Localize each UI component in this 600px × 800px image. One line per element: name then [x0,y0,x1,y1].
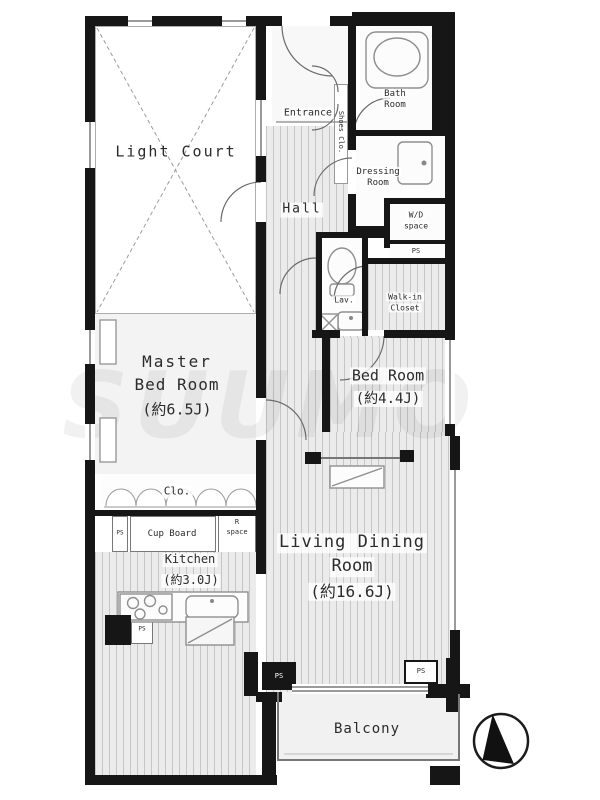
watermark: SUUMO [62,352,542,462]
label-master-1: Master [140,353,214,371]
label-bath-2: Room [382,100,408,110]
label-living-1: Living Dining [277,533,427,553]
label-lavatory: Lav. [332,295,355,304]
label-living-2: Room [330,557,375,577]
north-arrow-icon [474,714,528,768]
room-dressing-ext [356,198,384,232]
room-living-extension [95,622,256,775]
label-kitchen: Kitchen [163,553,218,567]
label-balcony: Balcony [332,721,402,737]
label-wd-2: space [402,221,430,230]
label-master-size: (約6.5J) [140,401,213,418]
label-ps-wd: PS [410,247,422,255]
label-dressing-2: Room [365,178,391,188]
label-r-space-1: R [233,518,241,526]
label-closet: Clo. [162,486,193,499]
label-shoes-closet: Shoes Clo. [335,111,347,153]
label-wic-2: Closet [389,303,422,312]
label-dressing-1: Dressing [354,167,401,177]
label-light-court: Light Court [113,143,238,160]
label-bedroom-1: Bed Room [350,367,426,384]
label-living-size: (約16.6J) [308,583,395,601]
label-wd-1: W/D [407,210,425,219]
room-light-court [95,26,256,314]
label-r-space-2: space [224,528,249,536]
label-master-2: Bed Room [132,376,221,394]
floor-plan: SUUMO [0,0,600,800]
label-bedroom-size: (約4.4J) [354,391,423,407]
label-ps-balcony-left: PS [273,672,285,680]
room-bath [360,26,432,130]
label-kitchen-size: (約3.0J) [161,574,220,588]
room-hall-lower [266,238,316,336]
label-cup-board: Cup Board [146,529,199,539]
label-hall: Hall [280,203,323,218]
label-bath-1: Bath [382,89,408,99]
label-entrance: Entrance [282,107,334,119]
room-lavatory [322,238,362,330]
label-ps-bottom-left: PS [136,627,147,634]
label-wic-1: Walk-in [386,292,424,301]
label-ps-cupboard: PS [114,531,125,538]
label-ps-balcony-right: PS [415,667,427,675]
